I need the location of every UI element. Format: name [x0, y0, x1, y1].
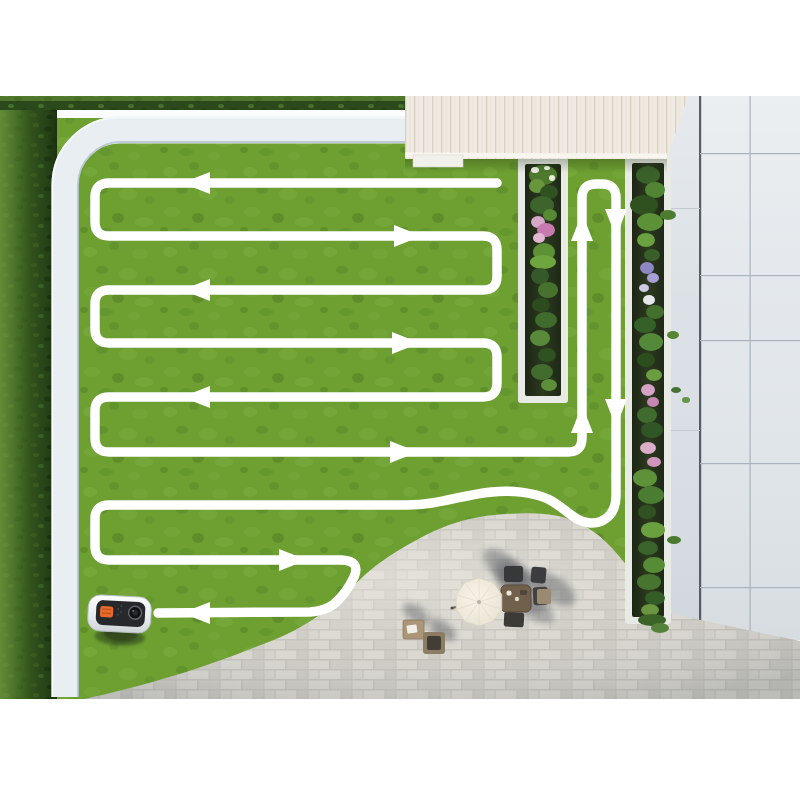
mower-stop-button — [100, 606, 114, 618]
house-roof — [405, 96, 688, 173]
patio-chair — [504, 566, 523, 582]
patio-stool — [537, 589, 551, 604]
house-step — [413, 155, 463, 167]
napkin — [406, 624, 417, 633]
tile-dark-joint — [699, 96, 701, 640]
patio-chair — [530, 566, 546, 583]
scene-svg — [0, 0, 800, 800]
tile-pavement — [668, 96, 800, 640]
rendered-scene — [0, 0, 800, 800]
patio-chair — [504, 611, 525, 627]
left-flower-bed — [518, 157, 568, 403]
